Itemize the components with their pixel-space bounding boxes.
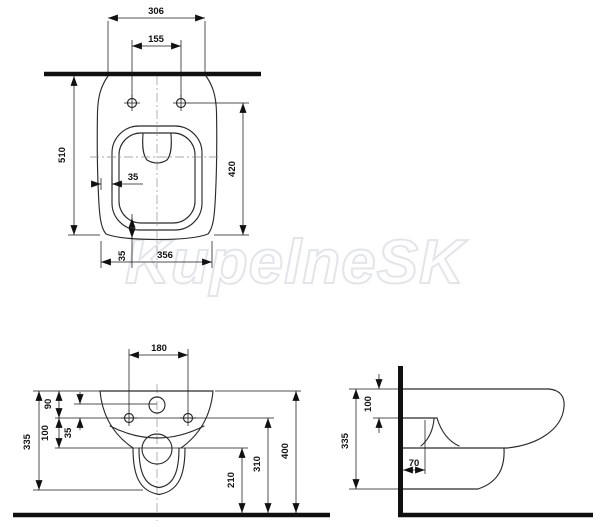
side-flush-channel-outer [437,418,459,446]
dim-label-180: 180 [151,343,167,354]
dim-label-510: 510 [57,147,68,163]
dim-label-310: 310 [252,456,263,472]
dim-label-35-rim: 35 [128,172,139,183]
technical-drawing-page: KupelneSK 306 [0,0,600,527]
wall-fixing-hole-left [121,410,137,426]
dim-top-height: 400 [280,391,296,513]
front-right-edge [181,391,213,448]
dim-label-35-bottom: 35 [117,250,128,261]
dim-body-height-side: 335 [340,389,356,489]
side-front-curve [507,389,564,448]
front-left-edge [100,391,133,448]
dim-label-335-front: 335 [22,433,33,450]
dim-label-70: 70 [409,458,420,469]
dim-label-335-side: 335 [340,432,351,449]
dim-label-306: 306 [148,6,164,17]
wc-dimension-drawing: KupelneSK 306 [0,0,600,527]
dim-label-210: 210 [226,472,237,488]
dim-drain-height: 210 [226,448,242,513]
watermark-text: KupelneSK [125,228,468,297]
dim-label-420: 420 [227,161,238,177]
bowl-inner-u [139,448,179,488]
seat-fixing-hole-right [173,95,189,111]
front-view: 180 90 100 35 335 210 310 [13,343,330,521]
dim-label-100-side: 100 [363,396,374,412]
dim-label-90: 90 [43,399,54,410]
dim-label-35-front: 35 [63,427,74,438]
dim-top-to-holes: 90 [43,391,59,418]
side-flush-channel-inner [421,419,434,446]
dim-depth: 510 [57,76,100,235]
dim-body-height-front: 335 [22,391,39,490]
dim-holes-height: 310 [252,418,268,513]
dim-bowl-length: 420 [188,103,249,235]
dim-label-400: 400 [280,443,291,459]
dim-label-356: 356 [157,250,173,261]
dim-top-to-seat: 100 [363,374,379,433]
dim-inlet-offset: 35 [63,392,80,438]
dim-drain-wall-offset: 70 [403,458,425,470]
dim-label-155: 155 [148,34,165,45]
dim-label-100-front: 100 [40,425,51,441]
wall-fixing-hole-right [180,410,196,426]
dim-seat-hole-spacing: 155 [132,34,181,97]
side-view: 70 100 335 [340,366,593,517]
dim-rim-offset: 35 [93,172,143,190]
dim-holes-to-drain: 100 [40,418,59,448]
dim-fixing-hole-spacing: 180 [129,343,188,411]
seat-fixing-hole-left [124,95,140,111]
